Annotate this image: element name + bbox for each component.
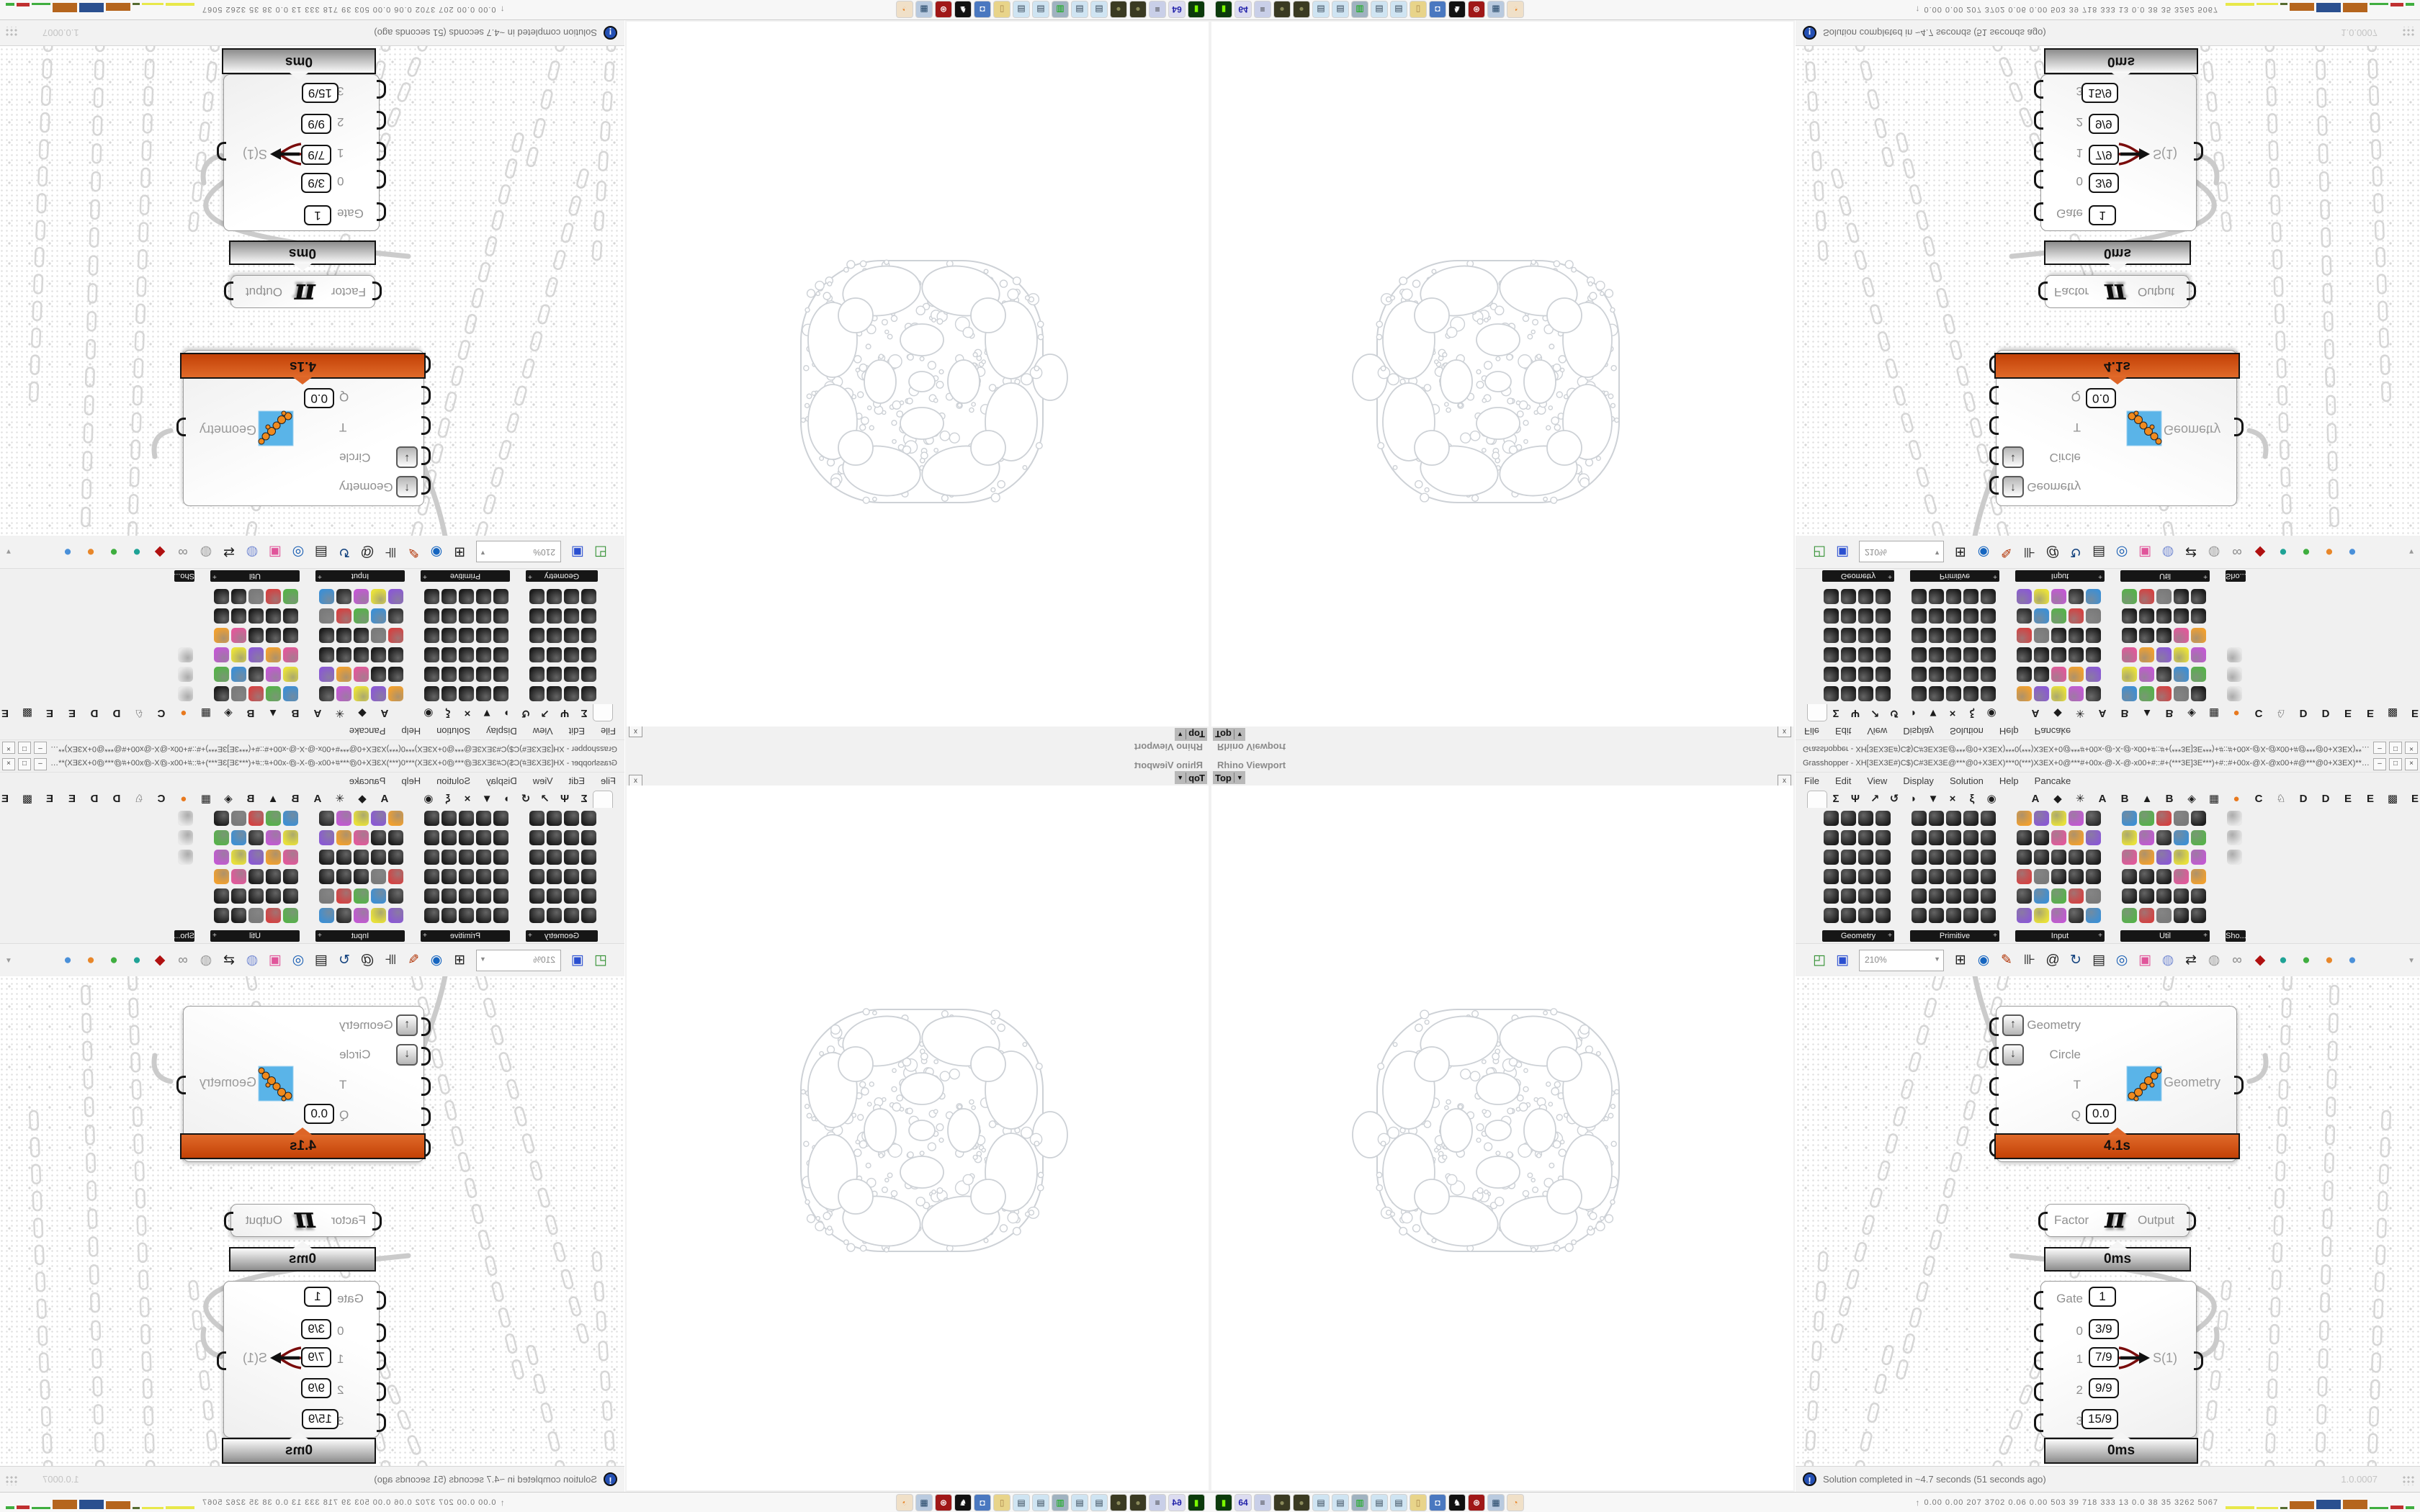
palette-icon[interactable] bbox=[424, 686, 439, 701]
palette-icon[interactable] bbox=[231, 811, 246, 826]
palette-icon[interactable] bbox=[1875, 686, 1891, 701]
palette-icon[interactable] bbox=[283, 850, 298, 865]
tab-plugin-e3[interactable]: E bbox=[0, 791, 14, 808]
palette-icon[interactable] bbox=[248, 811, 264, 826]
palette-icon[interactable] bbox=[564, 686, 579, 701]
palette-label[interactable]: Geometry+ bbox=[526, 570, 598, 582]
palette-icon[interactable] bbox=[581, 888, 596, 904]
palette-icon[interactable] bbox=[547, 647, 562, 662]
launcher-grenade-2[interactable]: ● bbox=[1294, 1495, 1309, 1511]
palette-icon[interactable] bbox=[319, 869, 334, 884]
palette-icon[interactable] bbox=[248, 850, 264, 865]
balloon-gray-icon[interactable]: ◍ bbox=[2205, 542, 2223, 561]
palette-icon[interactable] bbox=[354, 667, 369, 682]
palette-icon[interactable] bbox=[354, 628, 369, 643]
balloon-gray-icon[interactable]: ◍ bbox=[197, 951, 215, 970]
tab-plugin-e2[interactable]: E bbox=[40, 704, 59, 721]
palette-icon[interactable] bbox=[442, 686, 457, 701]
palette-icon[interactable] bbox=[2156, 667, 2172, 682]
grasshopper-titlebar[interactable]: Grasshopper - XH[3EX3E#)C$)C#3EX3E@***@0… bbox=[0, 739, 624, 756]
tab-plugin-orange-dot[interactable]: ● bbox=[2227, 704, 2246, 721]
palette-icon[interactable] bbox=[547, 869, 562, 884]
palette-icon[interactable] bbox=[459, 589, 474, 604]
palette-icon[interactable] bbox=[354, 589, 369, 604]
tab-intersect[interactable]: × bbox=[458, 704, 477, 721]
menu-edit[interactable]: Edit bbox=[569, 726, 585, 737]
palette-expand-icon[interactable]: + bbox=[1888, 930, 1892, 942]
palette-icon[interactable] bbox=[248, 667, 264, 682]
tab-plugin-shield[interactable]: ◈ bbox=[219, 704, 238, 721]
palette-icon[interactable] bbox=[442, 667, 457, 682]
launcher-notepad-1[interactable]: ▤ bbox=[1313, 1495, 1329, 1511]
palette-label[interactable]: Input+ bbox=[315, 570, 405, 582]
quality-orange-icon[interactable]: ● bbox=[81, 951, 100, 970]
palette-icon[interactable] bbox=[2051, 667, 2066, 682]
palette-icon[interactable] bbox=[424, 628, 439, 643]
palette-icon[interactable] bbox=[476, 667, 491, 682]
palette-icon[interactable] bbox=[1946, 830, 1961, 845]
palette-expand-icon[interactable]: + bbox=[1993, 570, 1997, 582]
zoom-extents-icon[interactable]: ⊞ bbox=[1951, 951, 1970, 970]
palette-icon[interactable] bbox=[1963, 830, 1978, 845]
rhino-canvas[interactable] bbox=[1211, 786, 1793, 1490]
palette-icon[interactable] bbox=[476, 850, 491, 865]
palette-icon[interactable] bbox=[1963, 647, 1978, 662]
palette-icon[interactable] bbox=[1858, 608, 1873, 624]
palette-icon[interactable] bbox=[2227, 667, 2242, 682]
palette-icon[interactable] bbox=[1963, 908, 1978, 923]
launcher-notepad-2[interactable]: ▤ bbox=[1072, 1, 1088, 17]
tab-plugin-a2[interactable]: A bbox=[2093, 791, 2112, 808]
palette-label[interactable]: Geometry+ bbox=[526, 930, 598, 942]
up-arrow-button[interactable]: ↑ bbox=[396, 1014, 418, 1036]
launcher-monitor-green[interactable]: ▥ bbox=[1352, 1, 1368, 17]
grasshopper-canvas[interactable]: Geometry↑Circle↓TQ0.0FixSphere bbox=[0, 46, 624, 536]
palette-icon[interactable] bbox=[319, 589, 334, 604]
palette-icon[interactable] bbox=[336, 647, 351, 662]
palette-icon[interactable] bbox=[476, 869, 491, 884]
palette-icon[interactable] bbox=[459, 608, 474, 624]
palette-icon[interactable] bbox=[371, 908, 386, 923]
palette-label[interactable]: Geometry+ bbox=[1822, 570, 1894, 582]
menu-pancake[interactable]: Pancake bbox=[349, 726, 386, 737]
menu-solution[interactable]: Solution bbox=[1950, 726, 1984, 737]
palette-icon[interactable] bbox=[581, 647, 596, 662]
spheres-gray-icon[interactable]: ∞ bbox=[174, 542, 192, 561]
gha-loader-icon[interactable]: ↻ bbox=[2066, 542, 2085, 561]
palette-icon[interactable] bbox=[283, 686, 298, 701]
palette-icon[interactable] bbox=[1929, 667, 1944, 682]
launcher-script[interactable]: ≡ bbox=[1255, 1495, 1270, 1511]
launcher-notepad-4[interactable]: ▤ bbox=[1391, 1495, 1407, 1511]
menu-file[interactable]: File bbox=[1804, 726, 1819, 737]
launcher-terminal[interactable]: ▮ bbox=[1216, 1, 1232, 17]
palette-icon[interactable] bbox=[2017, 628, 2032, 643]
q-value-box[interactable]: 0.0 bbox=[2086, 1104, 2116, 1124]
palette-icon[interactable] bbox=[231, 628, 246, 643]
palette-icon[interactable] bbox=[1824, 608, 1839, 624]
palette-icon[interactable] bbox=[2086, 686, 2101, 701]
gem-red-icon[interactable]: ◆ bbox=[151, 951, 169, 970]
palette-icon[interactable] bbox=[424, 647, 439, 662]
palette-icon[interactable] bbox=[2139, 908, 2154, 923]
launcher-firefox[interactable]: ◔ bbox=[897, 1, 913, 17]
palette-icon[interactable] bbox=[1929, 888, 1944, 904]
palette-icon[interactable] bbox=[1824, 647, 1839, 662]
tab-transform[interactable]: ξ bbox=[1963, 791, 1981, 808]
palette-icon[interactable] bbox=[178, 686, 193, 701]
palette-icon[interactable] bbox=[2069, 830, 2084, 845]
palette-icon[interactable] bbox=[2034, 811, 2049, 826]
palette-icon[interactable] bbox=[266, 908, 281, 923]
palette-icon[interactable] bbox=[248, 869, 264, 884]
image-capture-icon[interactable]: ▤ bbox=[312, 542, 331, 561]
launcher-black-white-app[interactable]: ♞ bbox=[955, 1, 971, 17]
palette-icon[interactable] bbox=[442, 589, 457, 604]
launcher-black-white-app[interactable]: ♞ bbox=[955, 1495, 971, 1511]
palette-icon[interactable] bbox=[581, 869, 596, 884]
palette-icon[interactable] bbox=[371, 589, 386, 604]
stream-filter-component[interactable]: Gate103/917/929/9315/9 S(1) bbox=[2040, 1281, 2197, 1438]
menu-display[interactable]: Display bbox=[486, 775, 517, 786]
tab-vector[interactable]: ↗ bbox=[1865, 704, 1884, 721]
palette-icon[interactable] bbox=[1912, 811, 1927, 826]
launcher-firefox[interactable]: ◔ bbox=[1507, 1495, 1523, 1511]
palette-icon[interactable] bbox=[2069, 869, 2084, 884]
tab-plugin-grid[interactable]: ▦ bbox=[2205, 704, 2223, 721]
palette-icon[interactable] bbox=[581, 608, 596, 624]
menu-solution[interactable]: Solution bbox=[436, 775, 470, 786]
menu-file[interactable]: File bbox=[1804, 775, 1819, 786]
tab-plugin-b1[interactable]: B bbox=[2115, 791, 2134, 808]
palette-icon[interactable] bbox=[214, 608, 229, 624]
tab-vector[interactable]: ↗ bbox=[1865, 791, 1884, 808]
palette-icon[interactable] bbox=[371, 850, 386, 865]
output-connector[interactable] bbox=[176, 1076, 186, 1094]
palette-icon[interactable] bbox=[1824, 667, 1839, 682]
tab-plugin-e1[interactable]: E bbox=[2339, 791, 2357, 808]
palette-expand-icon[interactable]: + bbox=[528, 930, 532, 942]
palette-icon[interactable] bbox=[493, 811, 508, 826]
palette-icon[interactable] bbox=[2017, 830, 2032, 845]
palette-icon[interactable] bbox=[178, 830, 193, 845]
palette-icon[interactable] bbox=[231, 647, 246, 662]
palette-icon[interactable] bbox=[493, 686, 508, 701]
palette-icon[interactable] bbox=[1858, 830, 1873, 845]
palette-icon[interactable] bbox=[1981, 850, 1996, 865]
tab-plugin-mountain[interactable]: ▲ bbox=[264, 704, 282, 721]
tab-plugin-e3[interactable]: E bbox=[2406, 791, 2420, 808]
tab-params[interactable] bbox=[1807, 703, 1827, 721]
palette-icon[interactable] bbox=[442, 888, 457, 904]
balloon-icon[interactable]: ◍ bbox=[243, 542, 261, 561]
tab-plugin-gem[interactable]: ◆ bbox=[353, 704, 372, 721]
palette-icon[interactable] bbox=[2174, 667, 2189, 682]
palette-icon[interactable] bbox=[388, 811, 403, 826]
palette-icon[interactable] bbox=[1824, 908, 1839, 923]
palette-icon[interactable] bbox=[2174, 908, 2189, 923]
palette-icon[interactable] bbox=[424, 908, 439, 923]
launcher-grenade-1[interactable]: ● bbox=[1130, 1495, 1146, 1511]
pi-factor-component[interactable]: Factor π Output bbox=[2045, 275, 2190, 308]
tab-plugin-a1[interactable]: A bbox=[2026, 791, 2045, 808]
palette-expand-icon[interactable]: + bbox=[528, 570, 532, 582]
palette-icon[interactable] bbox=[2069, 647, 2084, 662]
chevron-down-icon[interactable]: ▼ bbox=[1177, 731, 1183, 738]
palette-icon[interactable] bbox=[459, 686, 474, 701]
palette-icon[interactable] bbox=[1981, 869, 1996, 884]
output-connector[interactable] bbox=[224, 282, 233, 300]
open-file-icon[interactable]: ◰ bbox=[591, 951, 610, 970]
palette-icon[interactable] bbox=[476, 647, 491, 662]
palette-icon[interactable] bbox=[1912, 647, 1927, 662]
menu-help[interactable]: Help bbox=[401, 775, 421, 786]
maximize-icon[interactable]: □ bbox=[18, 758, 31, 770]
palette-icon[interactable] bbox=[2122, 888, 2137, 904]
tab-plugin-shield[interactable]: ◈ bbox=[219, 791, 238, 808]
tab-display[interactable]: ◉ bbox=[1982, 791, 2001, 808]
filter-value-box-1[interactable]: 3/9 bbox=[301, 173, 331, 193]
palette-icon[interactable] bbox=[529, 686, 544, 701]
launcher-notepad-1[interactable]: ▤ bbox=[1313, 1, 1329, 17]
palette-icon[interactable] bbox=[564, 811, 579, 826]
palette-icon[interactable] bbox=[319, 908, 334, 923]
palette-icon[interactable] bbox=[493, 628, 508, 643]
palette-icon[interactable] bbox=[214, 811, 229, 826]
find-magnifier-icon[interactable]: ◎ bbox=[2112, 951, 2131, 970]
tab-plugin-d2[interactable]: D bbox=[85, 791, 104, 808]
palette-icon[interactable] bbox=[2139, 869, 2154, 884]
tab-plugin-d1[interactable]: D bbox=[2294, 791, 2313, 808]
palette-icon[interactable] bbox=[1946, 850, 1961, 865]
zoom-level-select[interactable]: 210% ▼ bbox=[476, 950, 561, 971]
gate-icon[interactable]: ⊪ bbox=[2020, 951, 2039, 970]
palette-icon[interactable] bbox=[2122, 667, 2137, 682]
launcher-notepad-2[interactable]: ▤ bbox=[1072, 1495, 1088, 1511]
tab-vector[interactable]: ↗ bbox=[536, 704, 555, 721]
palette-icon[interactable] bbox=[1981, 628, 1996, 643]
resize-grip[interactable] bbox=[2402, 1475, 2415, 1485]
palette-icon[interactable] bbox=[319, 888, 334, 904]
palette-icon[interactable] bbox=[248, 908, 264, 923]
palette-icon[interactable] bbox=[442, 850, 457, 865]
palette-icon[interactable] bbox=[1963, 850, 1978, 865]
palette-icon[interactable] bbox=[2174, 686, 2189, 701]
palette-icon[interactable] bbox=[214, 628, 229, 643]
palette-icon[interactable] bbox=[1981, 686, 1996, 701]
viewport-top-button[interactable]: Top ▼ bbox=[1213, 728, 1245, 741]
balloon-icon[interactable]: ◍ bbox=[2159, 542, 2177, 561]
palette-icon[interactable] bbox=[2122, 830, 2137, 845]
help-box-icon[interactable]: ▣ bbox=[2136, 542, 2154, 561]
palette-icon[interactable] bbox=[2069, 628, 2084, 643]
palette-label[interactable]: Sho... bbox=[174, 570, 194, 582]
palette-expand-icon[interactable]: + bbox=[212, 570, 217, 582]
palette-icon[interactable] bbox=[2122, 908, 2137, 923]
spheres-gray-icon[interactable]: ∞ bbox=[174, 951, 192, 970]
quality-blue-icon[interactable]: ● bbox=[2343, 951, 2362, 970]
palette-icon[interactable] bbox=[319, 850, 334, 865]
tab-plugin-e2[interactable]: E bbox=[2361, 704, 2380, 721]
menu-help[interactable]: Help bbox=[401, 726, 421, 737]
launcher-notepad-1[interactable]: ▤ bbox=[1091, 1, 1107, 17]
palette-icon[interactable] bbox=[388, 908, 403, 923]
palette-icon[interactable] bbox=[581, 811, 596, 826]
tab-plugin-dashed[interactable]: ▩ bbox=[2383, 704, 2402, 721]
palette-icon[interactable] bbox=[581, 850, 596, 865]
palette-icon[interactable] bbox=[371, 811, 386, 826]
launcher-red-gear-app[interactable]: ⊛ bbox=[936, 1, 951, 17]
palette-icon[interactable] bbox=[248, 628, 264, 643]
palette-icon[interactable] bbox=[283, 667, 298, 682]
palette-icon[interactable] bbox=[371, 686, 386, 701]
palette-label[interactable]: Util+ bbox=[2120, 570, 2210, 582]
quality-green-icon[interactable]: ● bbox=[104, 951, 123, 970]
gate-icon[interactable]: ⊪ bbox=[2020, 542, 2039, 561]
palette-icon[interactable] bbox=[2069, 908, 2084, 923]
palette-icon[interactable] bbox=[2069, 686, 2084, 701]
palette-icon[interactable] bbox=[266, 589, 281, 604]
image-capture-icon[interactable]: ▤ bbox=[2089, 542, 2108, 561]
palette-icon[interactable] bbox=[476, 811, 491, 826]
menu-file[interactable]: File bbox=[601, 775, 616, 786]
palette-expand-icon[interactable]: + bbox=[2098, 570, 2102, 582]
palette-icon[interactable] bbox=[1946, 869, 1961, 884]
palette-icon[interactable] bbox=[2069, 850, 2084, 865]
palette-icon[interactable] bbox=[2122, 608, 2137, 624]
gem-red-icon[interactable]: ◆ bbox=[151, 542, 169, 561]
palette-icon[interactable] bbox=[266, 628, 281, 643]
palette-icon[interactable] bbox=[2156, 830, 2172, 845]
palette-icon[interactable] bbox=[354, 869, 369, 884]
tab-plugin-gem[interactable]: ◆ bbox=[2048, 791, 2067, 808]
palette-icon[interactable] bbox=[2051, 628, 2066, 643]
palette-icon[interactable] bbox=[371, 608, 386, 624]
toolbar-overflow-icon[interactable]: ▼ bbox=[2408, 548, 2415, 556]
tab-plugin-mountain[interactable]: ▲ bbox=[264, 791, 282, 808]
palette-icon[interactable] bbox=[319, 608, 334, 624]
launcher-floppy-64[interactable]: 64 bbox=[1169, 1495, 1185, 1511]
palette-icon[interactable] bbox=[2191, 888, 2206, 904]
palette-icon[interactable] bbox=[231, 830, 246, 845]
palette-icon[interactable] bbox=[354, 647, 369, 662]
tab-plugin-d1[interactable]: D bbox=[2294, 704, 2313, 721]
palette-icon[interactable] bbox=[493, 667, 508, 682]
palette-icon[interactable] bbox=[283, 589, 298, 604]
palette-expand-icon[interactable]: + bbox=[1888, 570, 1892, 582]
palette-icon[interactable] bbox=[1841, 686, 1856, 701]
launcher-notepad-2[interactable]: ▤ bbox=[1332, 1495, 1348, 1511]
tab-plugin-e3[interactable]: E bbox=[0, 704, 14, 721]
palette-icon[interactable] bbox=[2086, 608, 2101, 624]
tab-plugin-b2[interactable]: B bbox=[2160, 704, 2179, 721]
gem-red-icon[interactable]: ◆ bbox=[2251, 951, 2269, 970]
launcher-grenade-2[interactable]: ● bbox=[1294, 1, 1309, 17]
palette-icon[interactable] bbox=[529, 589, 544, 604]
palette-icon[interactable] bbox=[1824, 811, 1839, 826]
gha-loader-icon[interactable]: ↻ bbox=[2066, 951, 2085, 970]
palette-icon[interactable] bbox=[1824, 850, 1839, 865]
tab-plugin-orange-dot[interactable]: ● bbox=[2227, 791, 2246, 808]
output-connector[interactable] bbox=[217, 142, 226, 161]
tab-mesh[interactable]: ▼ bbox=[1924, 791, 1942, 808]
palette-icon[interactable] bbox=[1981, 647, 1996, 662]
palette-icon[interactable] bbox=[1963, 608, 1978, 624]
palette-icon[interactable] bbox=[1841, 830, 1856, 845]
palette-icon[interactable] bbox=[319, 628, 334, 643]
tab-surface[interactable]: ◗ bbox=[1904, 704, 1923, 721]
palette-icon[interactable] bbox=[424, 850, 439, 865]
palette-icon[interactable] bbox=[388, 589, 403, 604]
tab-plugin-gem[interactable]: ◆ bbox=[2048, 704, 2067, 721]
palette-icon[interactable] bbox=[2227, 830, 2242, 845]
palette-icon[interactable] bbox=[493, 850, 508, 865]
palette-icon[interactable] bbox=[1858, 888, 1873, 904]
palette-icon[interactable] bbox=[266, 647, 281, 662]
author-at-icon[interactable]: @ bbox=[2043, 951, 2062, 970]
palette-icon[interactable] bbox=[2086, 811, 2101, 826]
tab-plugin-mountain[interactable]: ▲ bbox=[2138, 791, 2156, 808]
image-capture-icon[interactable]: ▤ bbox=[312, 951, 331, 970]
menu-edit[interactable]: Edit bbox=[1835, 775, 1851, 786]
grasshopper-canvas[interactable]: Geometry↑Circle↓TQ0.0FixSphere bbox=[1796, 976, 2420, 1466]
close-icon[interactable]: × bbox=[2, 758, 15, 770]
tab-plugin-e2[interactable]: E bbox=[40, 791, 59, 808]
palette-icon[interactable] bbox=[1981, 608, 1996, 624]
menu-edit[interactable]: Edit bbox=[569, 775, 585, 786]
palette-icon[interactable] bbox=[283, 888, 298, 904]
launcher-monitor-green[interactable]: ▥ bbox=[1352, 1495, 1368, 1511]
pi-factor-component[interactable]: Factor π Output bbox=[230, 275, 375, 308]
up-arrow-button[interactable]: ↑ bbox=[2002, 476, 2024, 498]
tab-plugin-orange-dot[interactable]: ● bbox=[174, 791, 193, 808]
tab-plugin-a1[interactable]: A bbox=[375, 704, 394, 721]
launcher-monitor-green[interactable]: ▥ bbox=[1052, 1, 1068, 17]
launcher-floppy-64[interactable]: 64 bbox=[1235, 1495, 1251, 1511]
quality-teal-icon[interactable]: ● bbox=[127, 951, 146, 970]
input-connector[interactable] bbox=[1989, 446, 1999, 465]
quality-orange-icon[interactable]: ● bbox=[81, 542, 100, 561]
palette-icon[interactable] bbox=[214, 830, 229, 845]
image-capture-icon[interactable]: ▤ bbox=[2089, 951, 2108, 970]
palette-icon[interactable] bbox=[2122, 647, 2137, 662]
palette-icon[interactable] bbox=[547, 608, 562, 624]
launcher-script[interactable]: ≡ bbox=[1255, 1, 1270, 17]
balloon-gray-icon[interactable]: ◍ bbox=[2205, 951, 2223, 970]
palette-icon[interactable] bbox=[354, 850, 369, 865]
tab-maths[interactable]: Σ bbox=[1827, 791, 1845, 808]
palette-icon[interactable] bbox=[564, 830, 579, 845]
palette-icon[interactable] bbox=[2156, 888, 2172, 904]
palette-icon[interactable] bbox=[1963, 888, 1978, 904]
palette-icon[interactable] bbox=[547, 850, 562, 865]
palette-icon[interactable] bbox=[1841, 908, 1856, 923]
up-arrow-button[interactable]: ↑ bbox=[2002, 1014, 2024, 1036]
palette-icon[interactable] bbox=[2139, 589, 2154, 604]
palette-icon[interactable] bbox=[564, 869, 579, 884]
chevron-down-icon[interactable]: ▼ bbox=[1934, 955, 1940, 963]
palette-icon[interactable] bbox=[442, 869, 457, 884]
tab-maths[interactable]: Σ bbox=[575, 791, 593, 808]
palette-icon[interactable] bbox=[1841, 589, 1856, 604]
jumble-icon[interactable]: ⇄ bbox=[2182, 951, 2200, 970]
palette-icon[interactable] bbox=[1981, 811, 1996, 826]
palette-icon[interactable] bbox=[1875, 647, 1891, 662]
palette-icon[interactable] bbox=[371, 869, 386, 884]
palette-icon[interactable] bbox=[459, 667, 474, 682]
pi-factor-component[interactable]: Factor π Output bbox=[230, 1204, 375, 1237]
quality-teal-icon[interactable]: ● bbox=[127, 542, 146, 561]
